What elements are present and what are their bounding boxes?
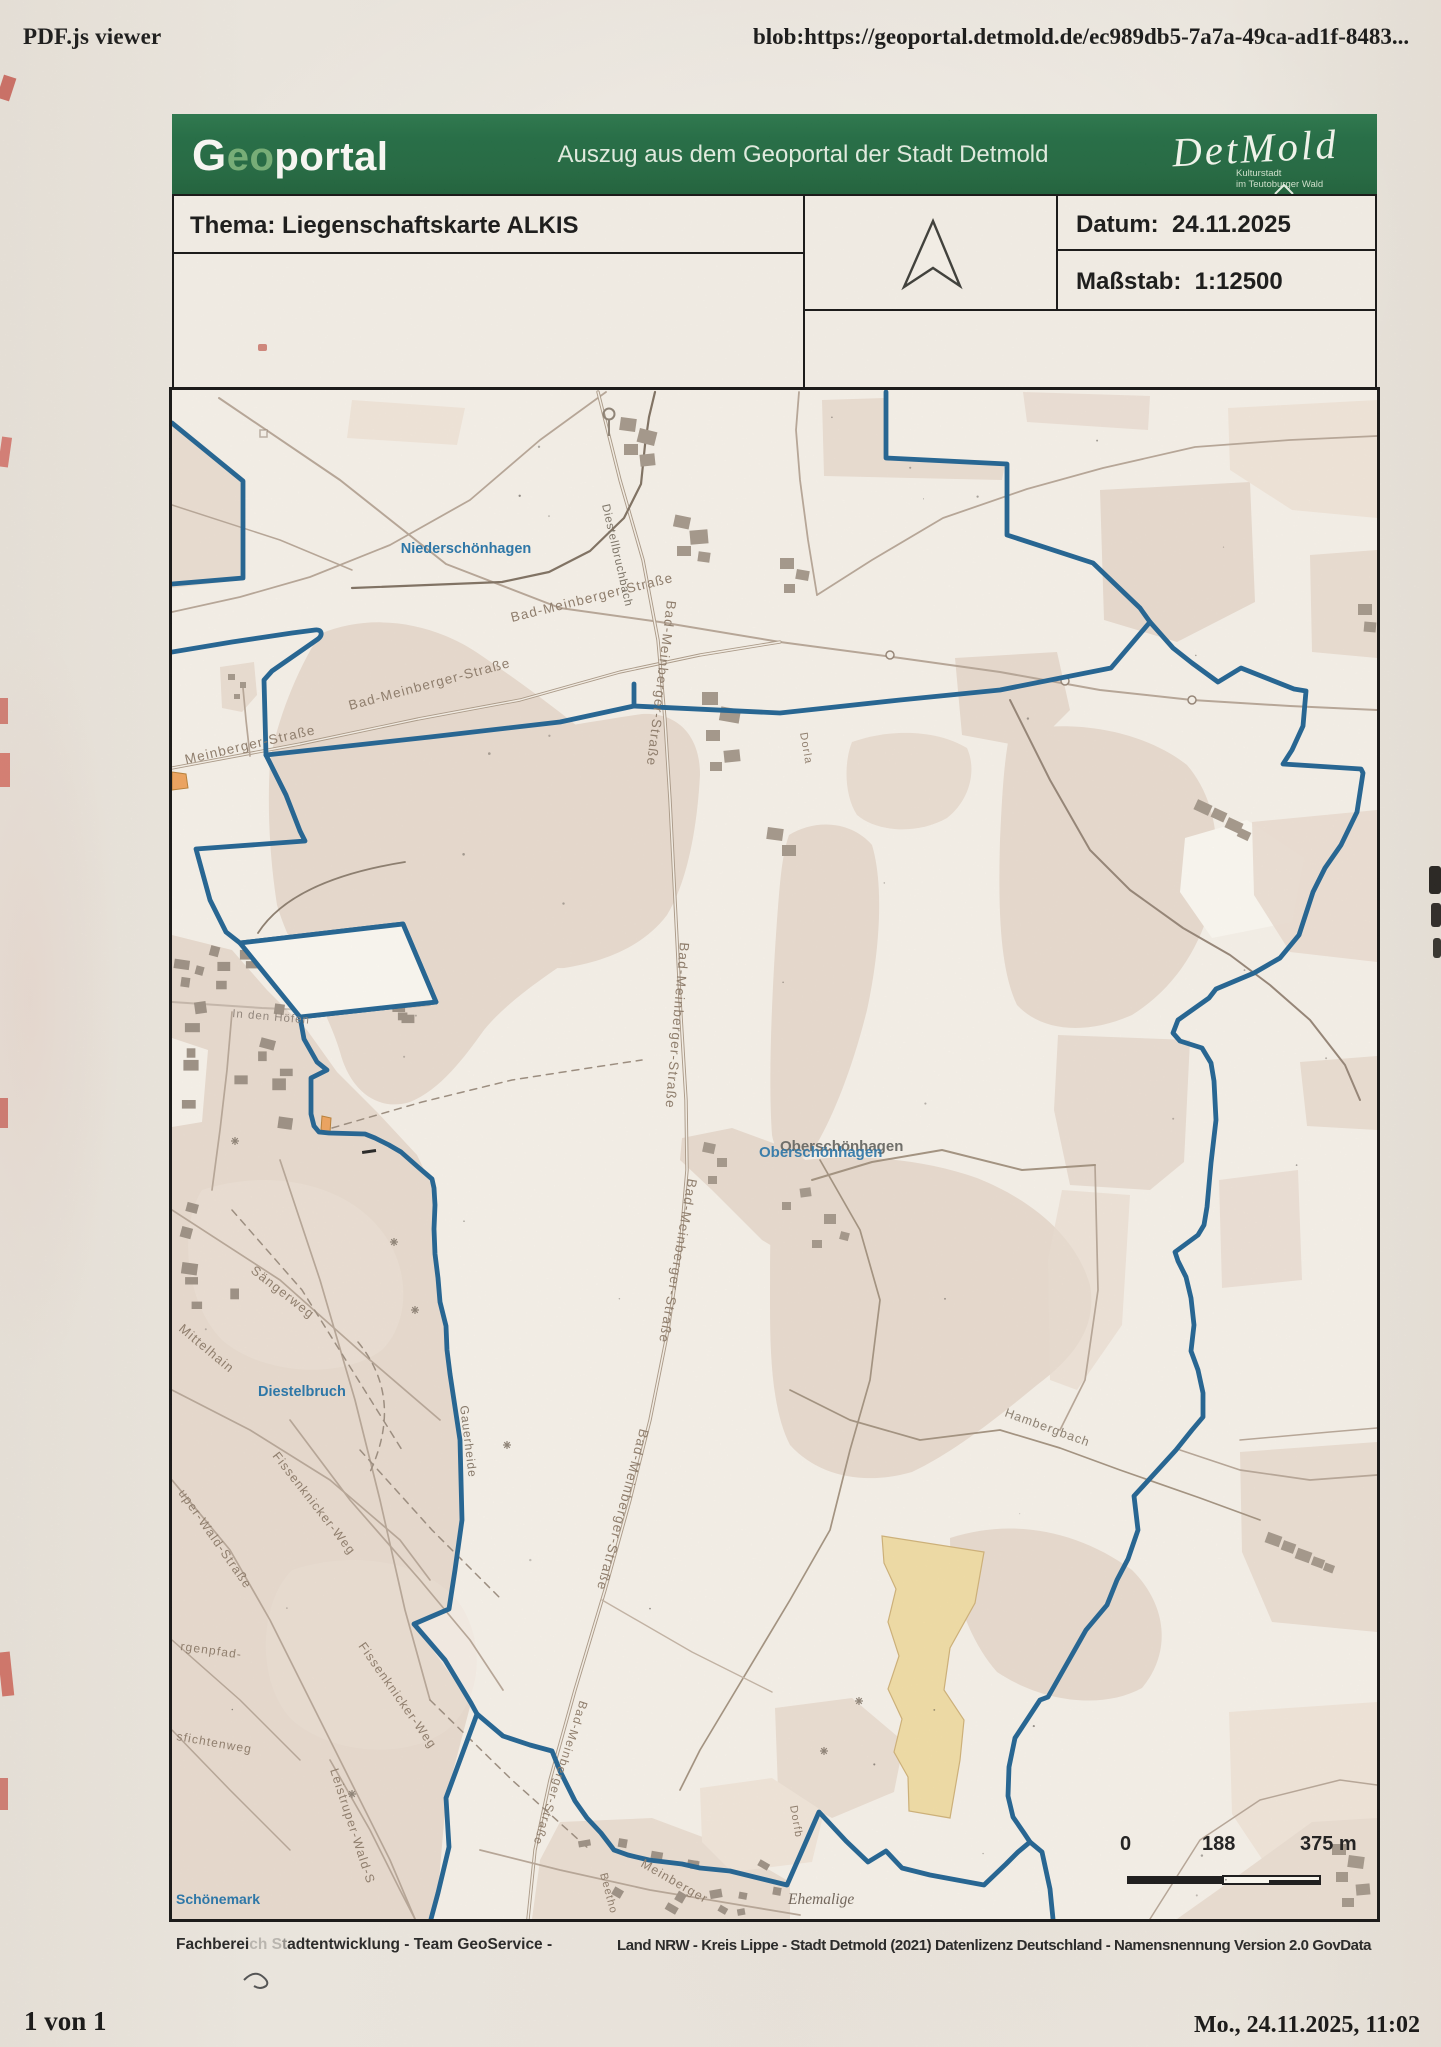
svg-text:Diestelbruch: Diestelbruch <box>258 1384 346 1400</box>
svg-text:Oberschönhagen: Oberschönhagen <box>759 1144 882 1161</box>
svg-text:0: 0 <box>1120 1833 1131 1855</box>
svg-text:Niederschönhagen: Niederschönhagen <box>401 541 532 557</box>
svg-text:375 m: 375 m <box>1300 1833 1357 1855</box>
svg-text:Schönemark: Schönemark <box>176 1891 260 1907</box>
svg-text:Ehemalige: Ehemalige <box>787 1891 854 1908</box>
svg-text:188: 188 <box>1202 1833 1235 1855</box>
